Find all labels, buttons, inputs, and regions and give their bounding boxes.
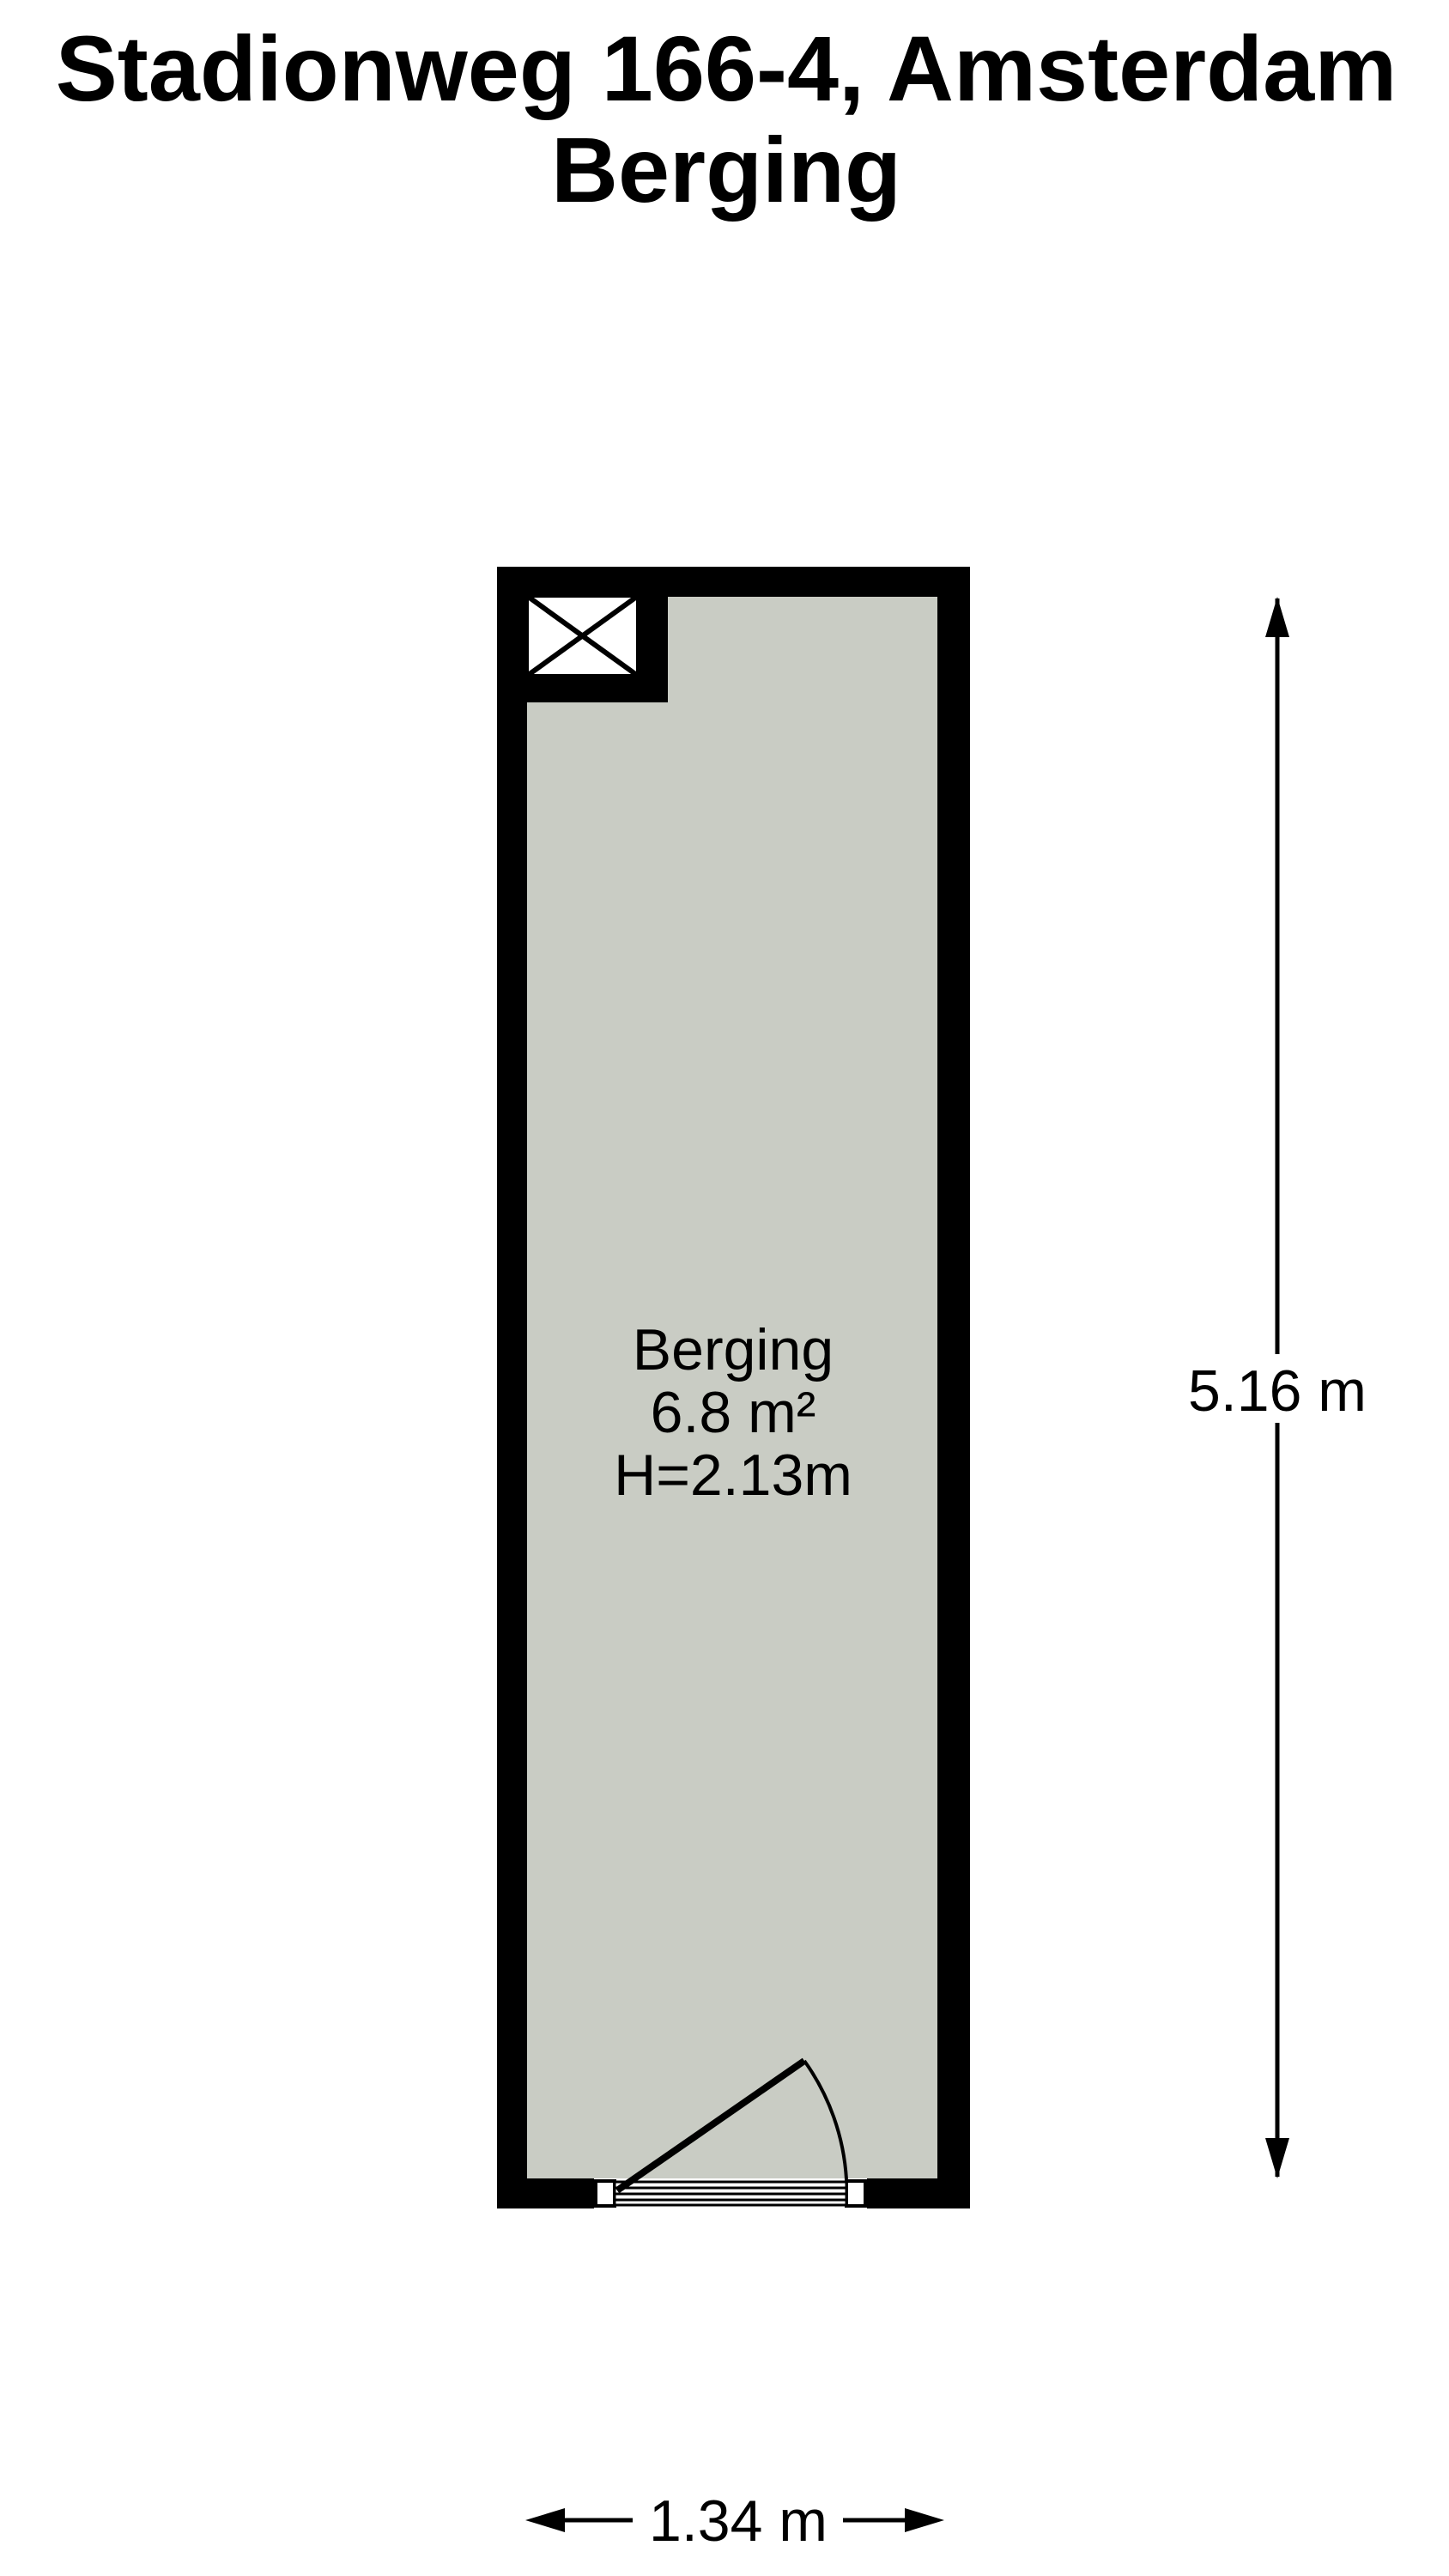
room-ceiling-height-label: H=2.13m <box>614 1443 852 1508</box>
vertical-dimension-label: 5.16 m <box>1188 1358 1367 1424</box>
page-title: Stadionweg 166-4, Amsterdam Berging <box>56 16 1397 222</box>
arrow-left-icon <box>525 2508 565 2532</box>
dimension-vertical: 5.16 m <box>1188 597 1367 2178</box>
floorplan-page: Stadionweg 166-4, Amsterdam Berging <box>0 0 1449 2576</box>
title-line2: Berging <box>551 118 901 222</box>
arrow-up-icon <box>1265 597 1289 637</box>
room-area-label: 6.8 m² <box>651 1380 816 1445</box>
door-jamb-left <box>596 2181 615 2206</box>
dimension-horizontal: 1.34 m <box>525 2488 944 2554</box>
room-name-label: Berging <box>633 1317 834 1382</box>
floorplan-canvas: Stadionweg 166-4, Amsterdam Berging <box>0 0 1449 2576</box>
shaft-icon <box>527 596 638 676</box>
arrow-down-icon <box>1265 2138 1289 2178</box>
door-jamb-right <box>846 2181 865 2206</box>
title-line1: Stadionweg 166-4, Amsterdam <box>56 16 1397 120</box>
arrow-right-icon <box>905 2508 944 2532</box>
horizontal-dimension-label: 1.34 m <box>649 2488 828 2554</box>
